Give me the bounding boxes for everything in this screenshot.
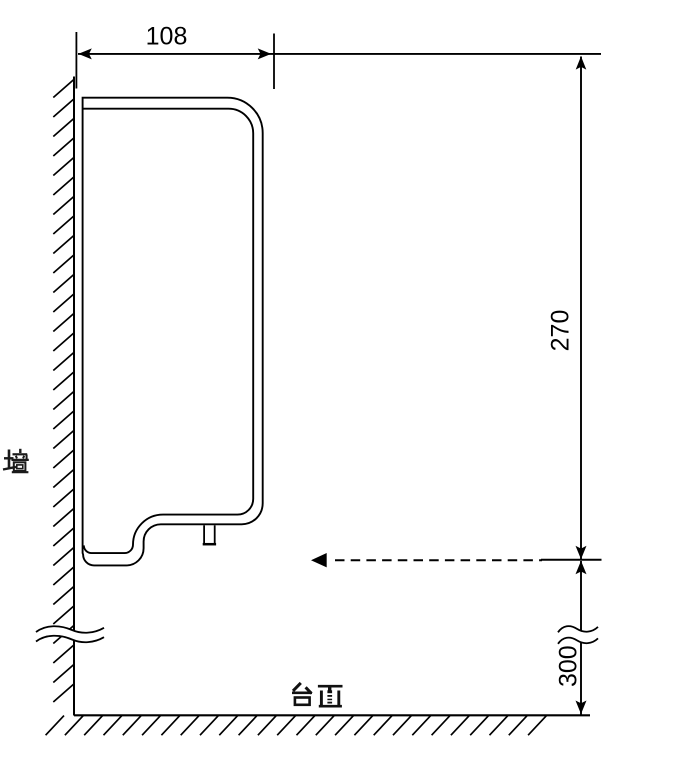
svg-text:270: 270 [546,310,574,352]
svg-text:108: 108 [146,23,188,51]
svg-text:300: 300 [554,645,582,687]
